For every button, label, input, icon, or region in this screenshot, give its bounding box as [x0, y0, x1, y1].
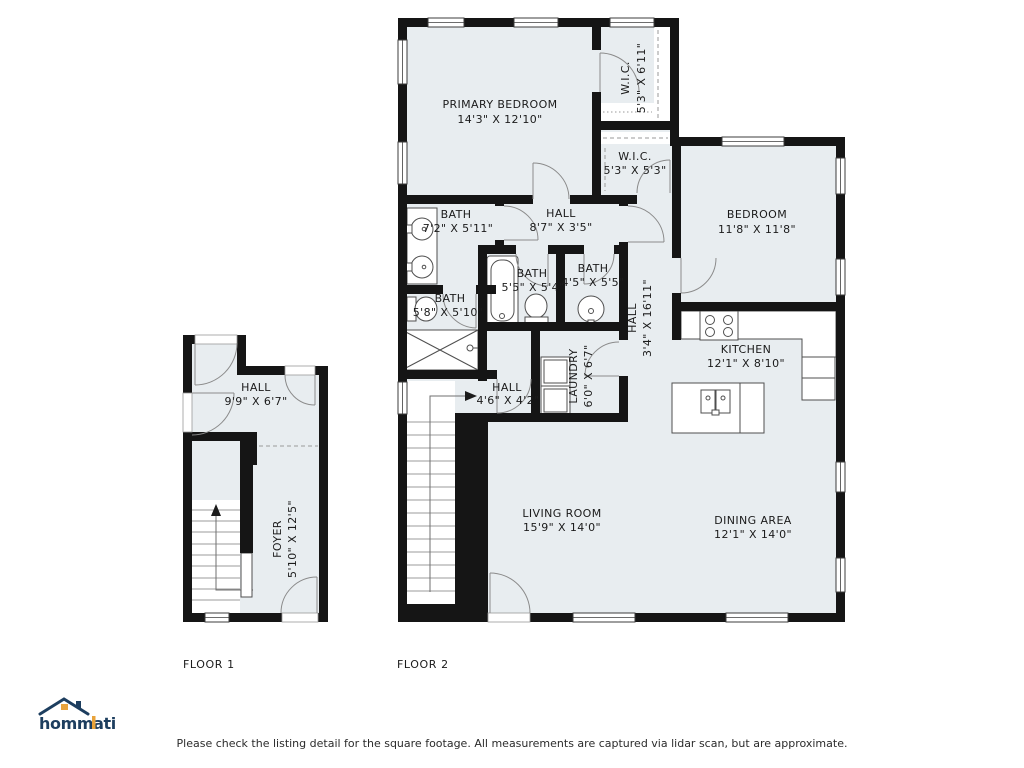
floor2-plan: PRIMARY BEDROOM 14'3" X 12'10" W.I.C. 5'… [398, 18, 845, 622]
footer-disclaimer: Please check the listing detail for the … [177, 737, 848, 750]
room-dims-bath-powder: 4'5" X 5'5" [561, 276, 624, 289]
floor1-plan: HALL 9'9" X 6'7" FOYER 5'10" X 12'5" [183, 335, 328, 622]
window-icons-floor1 [205, 613, 229, 622]
room-dims-hall-floor1: 9'9" X 6'7" [224, 395, 287, 408]
room-label-primary-bedroom: PRIMARY BEDROOM [442, 98, 557, 111]
stove-icon [700, 311, 738, 340]
room-label-hall-upper: HALL [546, 207, 576, 220]
room-dims-hall-upper: 8'7" X 3'5" [529, 221, 592, 234]
room-label-hall-floor1: HALL [241, 381, 271, 394]
logo-text: hommati [39, 714, 116, 733]
room-dims-bedroom: 11'8" X 11'8" [718, 223, 796, 236]
room-label-laundry: LAUNDRY [567, 348, 580, 403]
room-label-dining-area: DINING AREA [714, 514, 792, 527]
logo-window-icon [61, 704, 68, 710]
room-dims-dining-area: 12'1" X 14'0" [714, 528, 792, 541]
room-dims-hall-small: 4'6" X 4'2" [476, 394, 539, 407]
room-dims-wic-second: 5'3" X 5'3" [603, 164, 666, 177]
room-dims-wic-primary: 5'3" X 6'11" [635, 43, 648, 114]
room-label-wic-primary: W.I.C. [619, 61, 632, 94]
refrigerator-icon [802, 357, 835, 400]
floor2-caption: FLOOR 2 [397, 658, 449, 671]
room-dims-bath-shower: 5'8" X 5'10" [413, 306, 484, 319]
room-dims-foyer: 5'10" X 12'5" [286, 500, 299, 578]
room-dims-bath-primary: 7'2" X 5'11" [423, 222, 494, 235]
washer-dryer-icon [541, 357, 570, 415]
hommati-logo: hommati [39, 699, 116, 733]
room-dims-kitchen: 12'1" X 8'10" [707, 357, 785, 370]
toilet-icon [525, 294, 548, 326]
floor-plan-canvas: PRIMARY BEDROOM 14'3" X 12'10" W.I.C. 5'… [0, 0, 1024, 768]
room-label-kitchen: KITCHEN [721, 343, 771, 356]
room-dims-living-room: 15'9" X 14'0" [523, 521, 601, 534]
floor1-caption: FLOOR 1 [183, 658, 235, 671]
double-vanity-sink-icon [406, 208, 437, 284]
logo-accent-mark [92, 716, 96, 729]
room-label-bath-shower: BATH [435, 292, 466, 305]
room-label-bath-powder: BATH [578, 262, 609, 275]
room-label-bath-primary: BATH [441, 208, 472, 221]
room-dims-hall-long: 3'4" X 16'11" [641, 279, 654, 357]
shower-icon [402, 330, 478, 370]
room-label-hall-small: HALL [492, 381, 522, 394]
room-label-bath-tub: BATH [517, 267, 548, 280]
room-label-hall-long: HALL [626, 303, 639, 333]
floor-plan-page: PRIMARY BEDROOM 14'3" X 12'10" W.I.C. 5'… [0, 0, 1024, 768]
room-label-wic-second: W.I.C. [618, 150, 651, 163]
room-dims-bath-tub: 5'5" X 5'4" [501, 281, 564, 294]
logo-chimney-icon [76, 701, 81, 708]
room-dims-primary-bedroom: 14'3" X 12'10" [457, 113, 542, 126]
room-dims-laundry: 6'0" X 6'7" [582, 344, 595, 407]
room-label-foyer: FOYER [271, 520, 284, 558]
room-label-bedroom: BEDROOM [727, 208, 787, 221]
kitchen-island-icon [672, 383, 764, 433]
room-label-living-room: LIVING ROOM [522, 507, 601, 520]
